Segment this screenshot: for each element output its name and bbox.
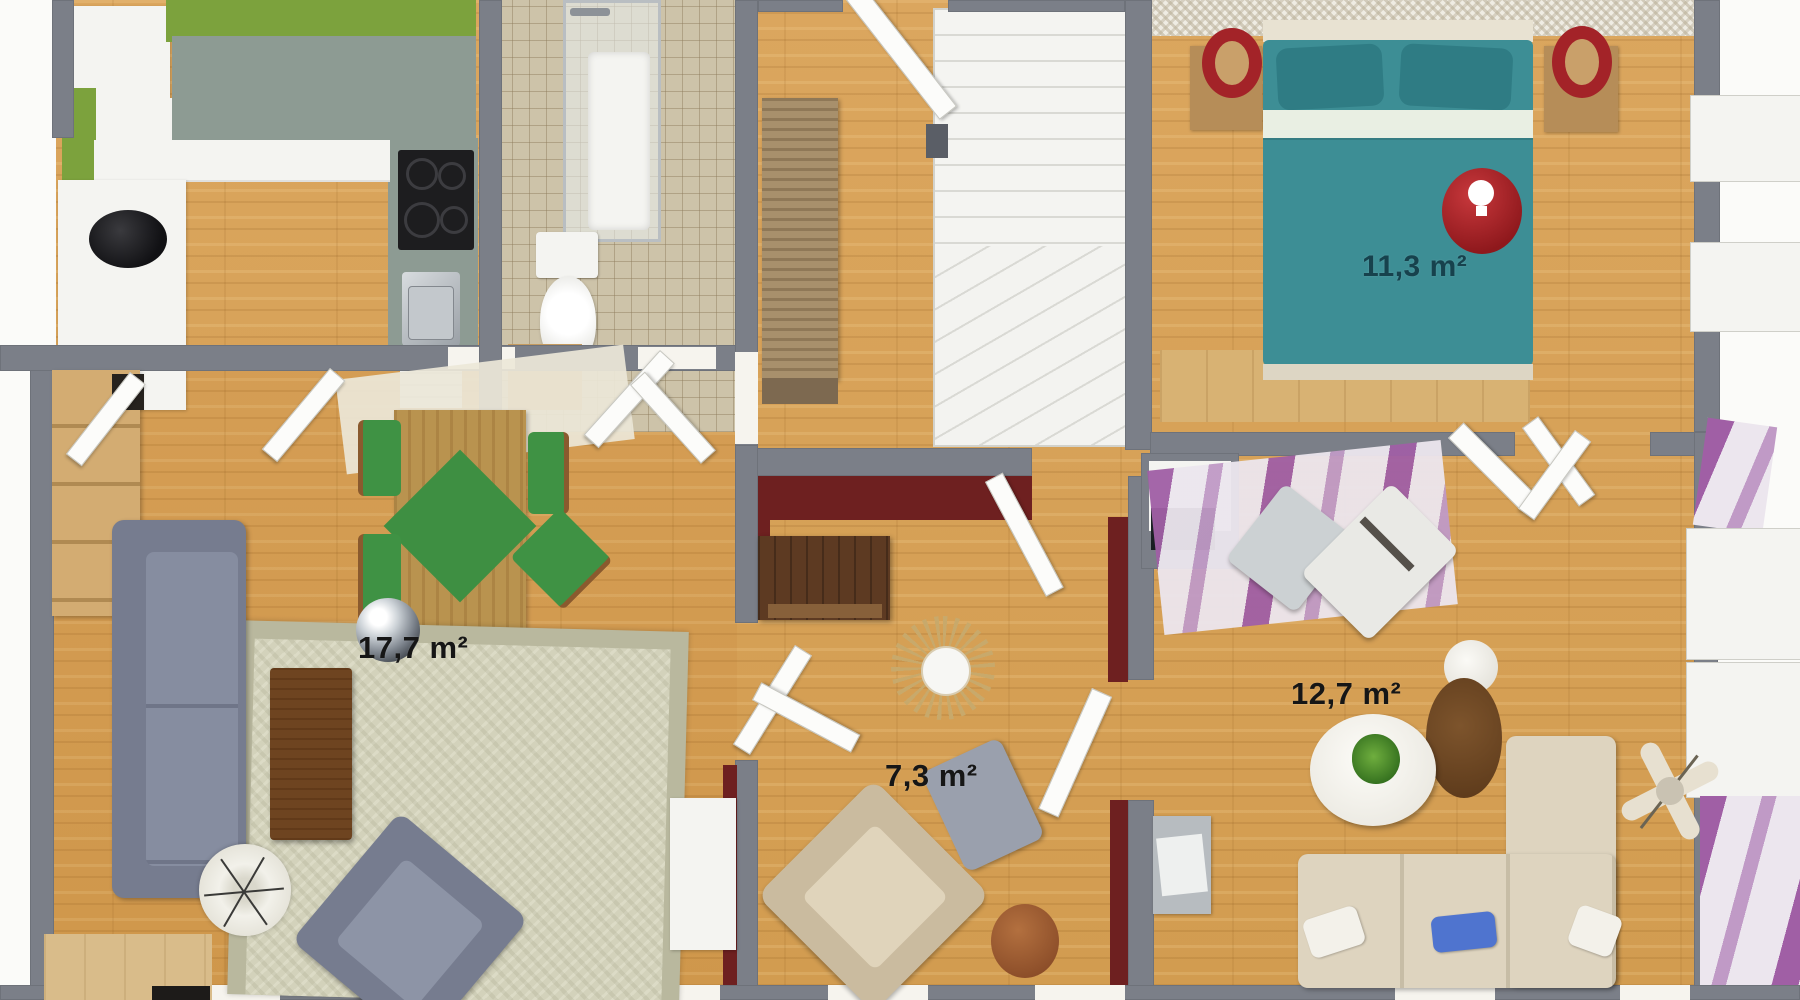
bed-lamp-bulb-base-icon xyxy=(1476,206,1487,216)
wall-hall-bedroom xyxy=(1125,0,1152,450)
kitchen-cabinet-block-2 xyxy=(92,98,180,144)
dining-chair xyxy=(358,420,401,496)
bed-sheet-fold xyxy=(1263,110,1533,138)
wall-left-outer xyxy=(30,345,54,1000)
bedroom-area-label: 11,3 m² xyxy=(1362,250,1467,284)
kitchen-countertop xyxy=(172,36,476,140)
gray-sofa-seat xyxy=(146,552,238,866)
hallroom-sideboard-front xyxy=(768,604,882,618)
potted-plant xyxy=(1352,734,1400,784)
staircase xyxy=(933,8,1129,250)
doorway-bottom-5 xyxy=(1035,985,1125,1000)
striped-wall-face-upper xyxy=(1693,418,1777,535)
shower-fixture xyxy=(570,8,610,16)
doorway-bottom-7 xyxy=(1620,985,1690,1000)
sunburst-mirror-center xyxy=(921,646,971,696)
wall-kitchen-bath xyxy=(479,0,502,410)
bed-pillow-left xyxy=(1275,43,1384,110)
wall-hallroom-top xyxy=(735,448,1032,476)
staircase-winder xyxy=(933,246,1129,447)
hallroom-desk xyxy=(670,798,736,950)
hallroom-red-wall-face-right-upper xyxy=(1108,517,1128,682)
wall-hall-top-right xyxy=(948,0,1125,12)
bed-headboard xyxy=(1263,20,1533,42)
living-room-area-label: 17,7 m² xyxy=(358,630,468,666)
exterior-left xyxy=(0,345,32,1000)
bedside-lamp-right xyxy=(1552,26,1612,98)
coffee-table xyxy=(270,668,352,840)
brown-round-pouf xyxy=(991,904,1059,978)
wall-right-outer-upper xyxy=(1694,0,1720,432)
window-sitting-right-1 xyxy=(1686,528,1800,660)
cooktop-burner xyxy=(404,202,440,238)
toilet-tank xyxy=(536,232,598,278)
floor-plan: 11,3 m² xyxy=(0,0,1800,1000)
bed-footer-frame xyxy=(1263,364,1533,380)
wall-left-top-stub xyxy=(52,0,74,138)
wall-hallroom-right-lower xyxy=(1128,800,1154,1000)
shower-tray xyxy=(588,52,650,230)
cooktop-burner xyxy=(440,206,468,234)
bedside-lamp-left xyxy=(1202,28,1262,98)
credenza-decor-black xyxy=(152,986,210,1000)
striped-wall-face-lower xyxy=(1700,796,1800,1000)
cooktop-burner xyxy=(438,162,466,190)
brown-round-table xyxy=(1426,678,1502,798)
wall-hallroom-left-lower xyxy=(735,760,758,1000)
bed-lamp-bulb-icon xyxy=(1468,180,1494,206)
hall-sideboard-base xyxy=(762,378,838,404)
sofa-pillow-blue xyxy=(1430,911,1497,953)
hall-room-area-label: 7,3 m² xyxy=(885,758,978,794)
wall-living-top xyxy=(0,345,737,371)
sitting-room-area-label: 12,7 m² xyxy=(1291,676,1401,712)
bed-pillow-right xyxy=(1398,43,1513,111)
dining-chair xyxy=(528,432,569,514)
cooktop-burner xyxy=(406,158,438,190)
cabinet-white-item xyxy=(1156,834,1208,896)
window-bedroom-right-1 xyxy=(1690,95,1800,182)
black-stool xyxy=(89,210,167,268)
kitchen-base-cabinets xyxy=(94,140,390,182)
stair-newel-post xyxy=(926,124,948,158)
doorway-bath-hall xyxy=(735,352,758,444)
wall-hall-top-left xyxy=(758,0,843,12)
exterior-left-top xyxy=(0,0,56,352)
window-bedroom-right-2 xyxy=(1690,242,1800,332)
hall-sideboard xyxy=(762,98,838,380)
kitchen-sink-basin xyxy=(408,286,454,340)
hallroom-red-wall-face-right-lower xyxy=(1110,800,1128,1000)
wall-hallroom-left-upper xyxy=(735,445,758,623)
wall-bedroom-bottom-stub xyxy=(1650,432,1700,456)
